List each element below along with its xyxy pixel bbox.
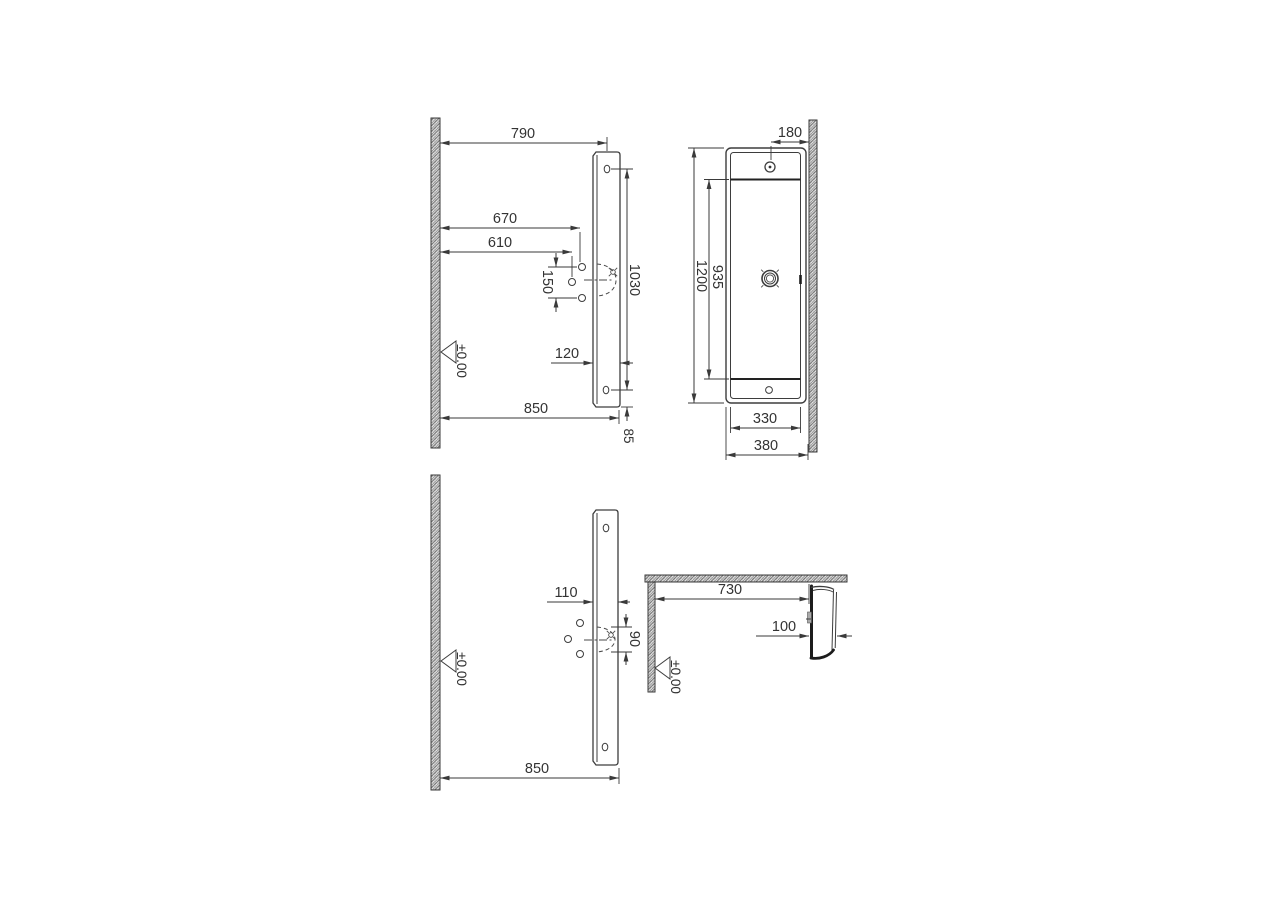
fixing-point bbox=[569, 279, 576, 286]
dim-85: 85 bbox=[621, 428, 636, 443]
mounting-hole bbox=[602, 743, 608, 751]
dim-850: 850 bbox=[524, 401, 548, 417]
floor-bar bbox=[431, 475, 440, 790]
fixing-point bbox=[579, 264, 586, 271]
drawing-canvas: 790 670 610 150 1030 120 850 85 bbox=[0, 0, 1280, 900]
drain-symbol bbox=[609, 268, 617, 276]
datum-triangle bbox=[655, 657, 670, 679]
mounting-hole bbox=[603, 386, 609, 394]
wall-bar bbox=[645, 575, 847, 582]
floor-bar bbox=[431, 118, 440, 448]
mounting-hole bbox=[603, 524, 609, 532]
dim-790: 790 bbox=[511, 126, 535, 142]
wall-bar bbox=[809, 120, 817, 452]
fixing-point bbox=[579, 295, 586, 302]
dim-670: 670 bbox=[493, 211, 517, 227]
dim-100: 100 bbox=[772, 619, 796, 635]
datum-level: ±0.00 bbox=[454, 344, 469, 378]
dim-610: 610 bbox=[488, 235, 512, 251]
dim-180: 180 bbox=[778, 125, 802, 141]
mounting-hole bbox=[604, 165, 610, 173]
datum-triangle bbox=[441, 341, 456, 363]
fixing-point bbox=[565, 636, 572, 643]
datum-level: ±0.00 bbox=[454, 652, 469, 686]
basin-section bbox=[806, 586, 837, 658]
dim-120: 120 bbox=[555, 346, 579, 362]
drain-outlet bbox=[761, 270, 779, 288]
dim-935: 935 bbox=[709, 265, 725, 289]
dim-110: 110 bbox=[554, 585, 577, 601]
dim-150: 150 bbox=[539, 270, 555, 294]
view-side-section: 730 100 ±0.00 bbox=[645, 575, 852, 694]
bracket bbox=[808, 612, 812, 623]
dim-90: 90 bbox=[626, 631, 642, 647]
view-front-elevation-detail: 110 90 850 ±0.00 bbox=[431, 475, 642, 790]
dim-380: 380 bbox=[754, 438, 778, 454]
datum-level: ±0.00 bbox=[668, 660, 683, 694]
drain-hidden-outline bbox=[597, 627, 615, 652]
fixing-point bbox=[577, 651, 584, 658]
dim-850: 850 bbox=[525, 761, 549, 777]
technical-drawing: 790 670 610 150 1030 120 850 85 bbox=[0, 0, 1280, 900]
fixing-point bbox=[577, 620, 584, 627]
dim-330: 330 bbox=[753, 411, 777, 427]
view-front-elevation: 790 670 610 150 1030 120 850 85 bbox=[431, 118, 642, 448]
view-plan: 180 1200 935 330 380 bbox=[688, 120, 817, 460]
fixing-hole bbox=[766, 387, 773, 394]
dim-730: 730 bbox=[718, 582, 742, 598]
dim-1030: 1030 bbox=[626, 264, 642, 296]
side-wall-bar bbox=[648, 582, 655, 692]
dim-1200: 1200 bbox=[693, 260, 709, 292]
datum-triangle bbox=[441, 650, 456, 672]
